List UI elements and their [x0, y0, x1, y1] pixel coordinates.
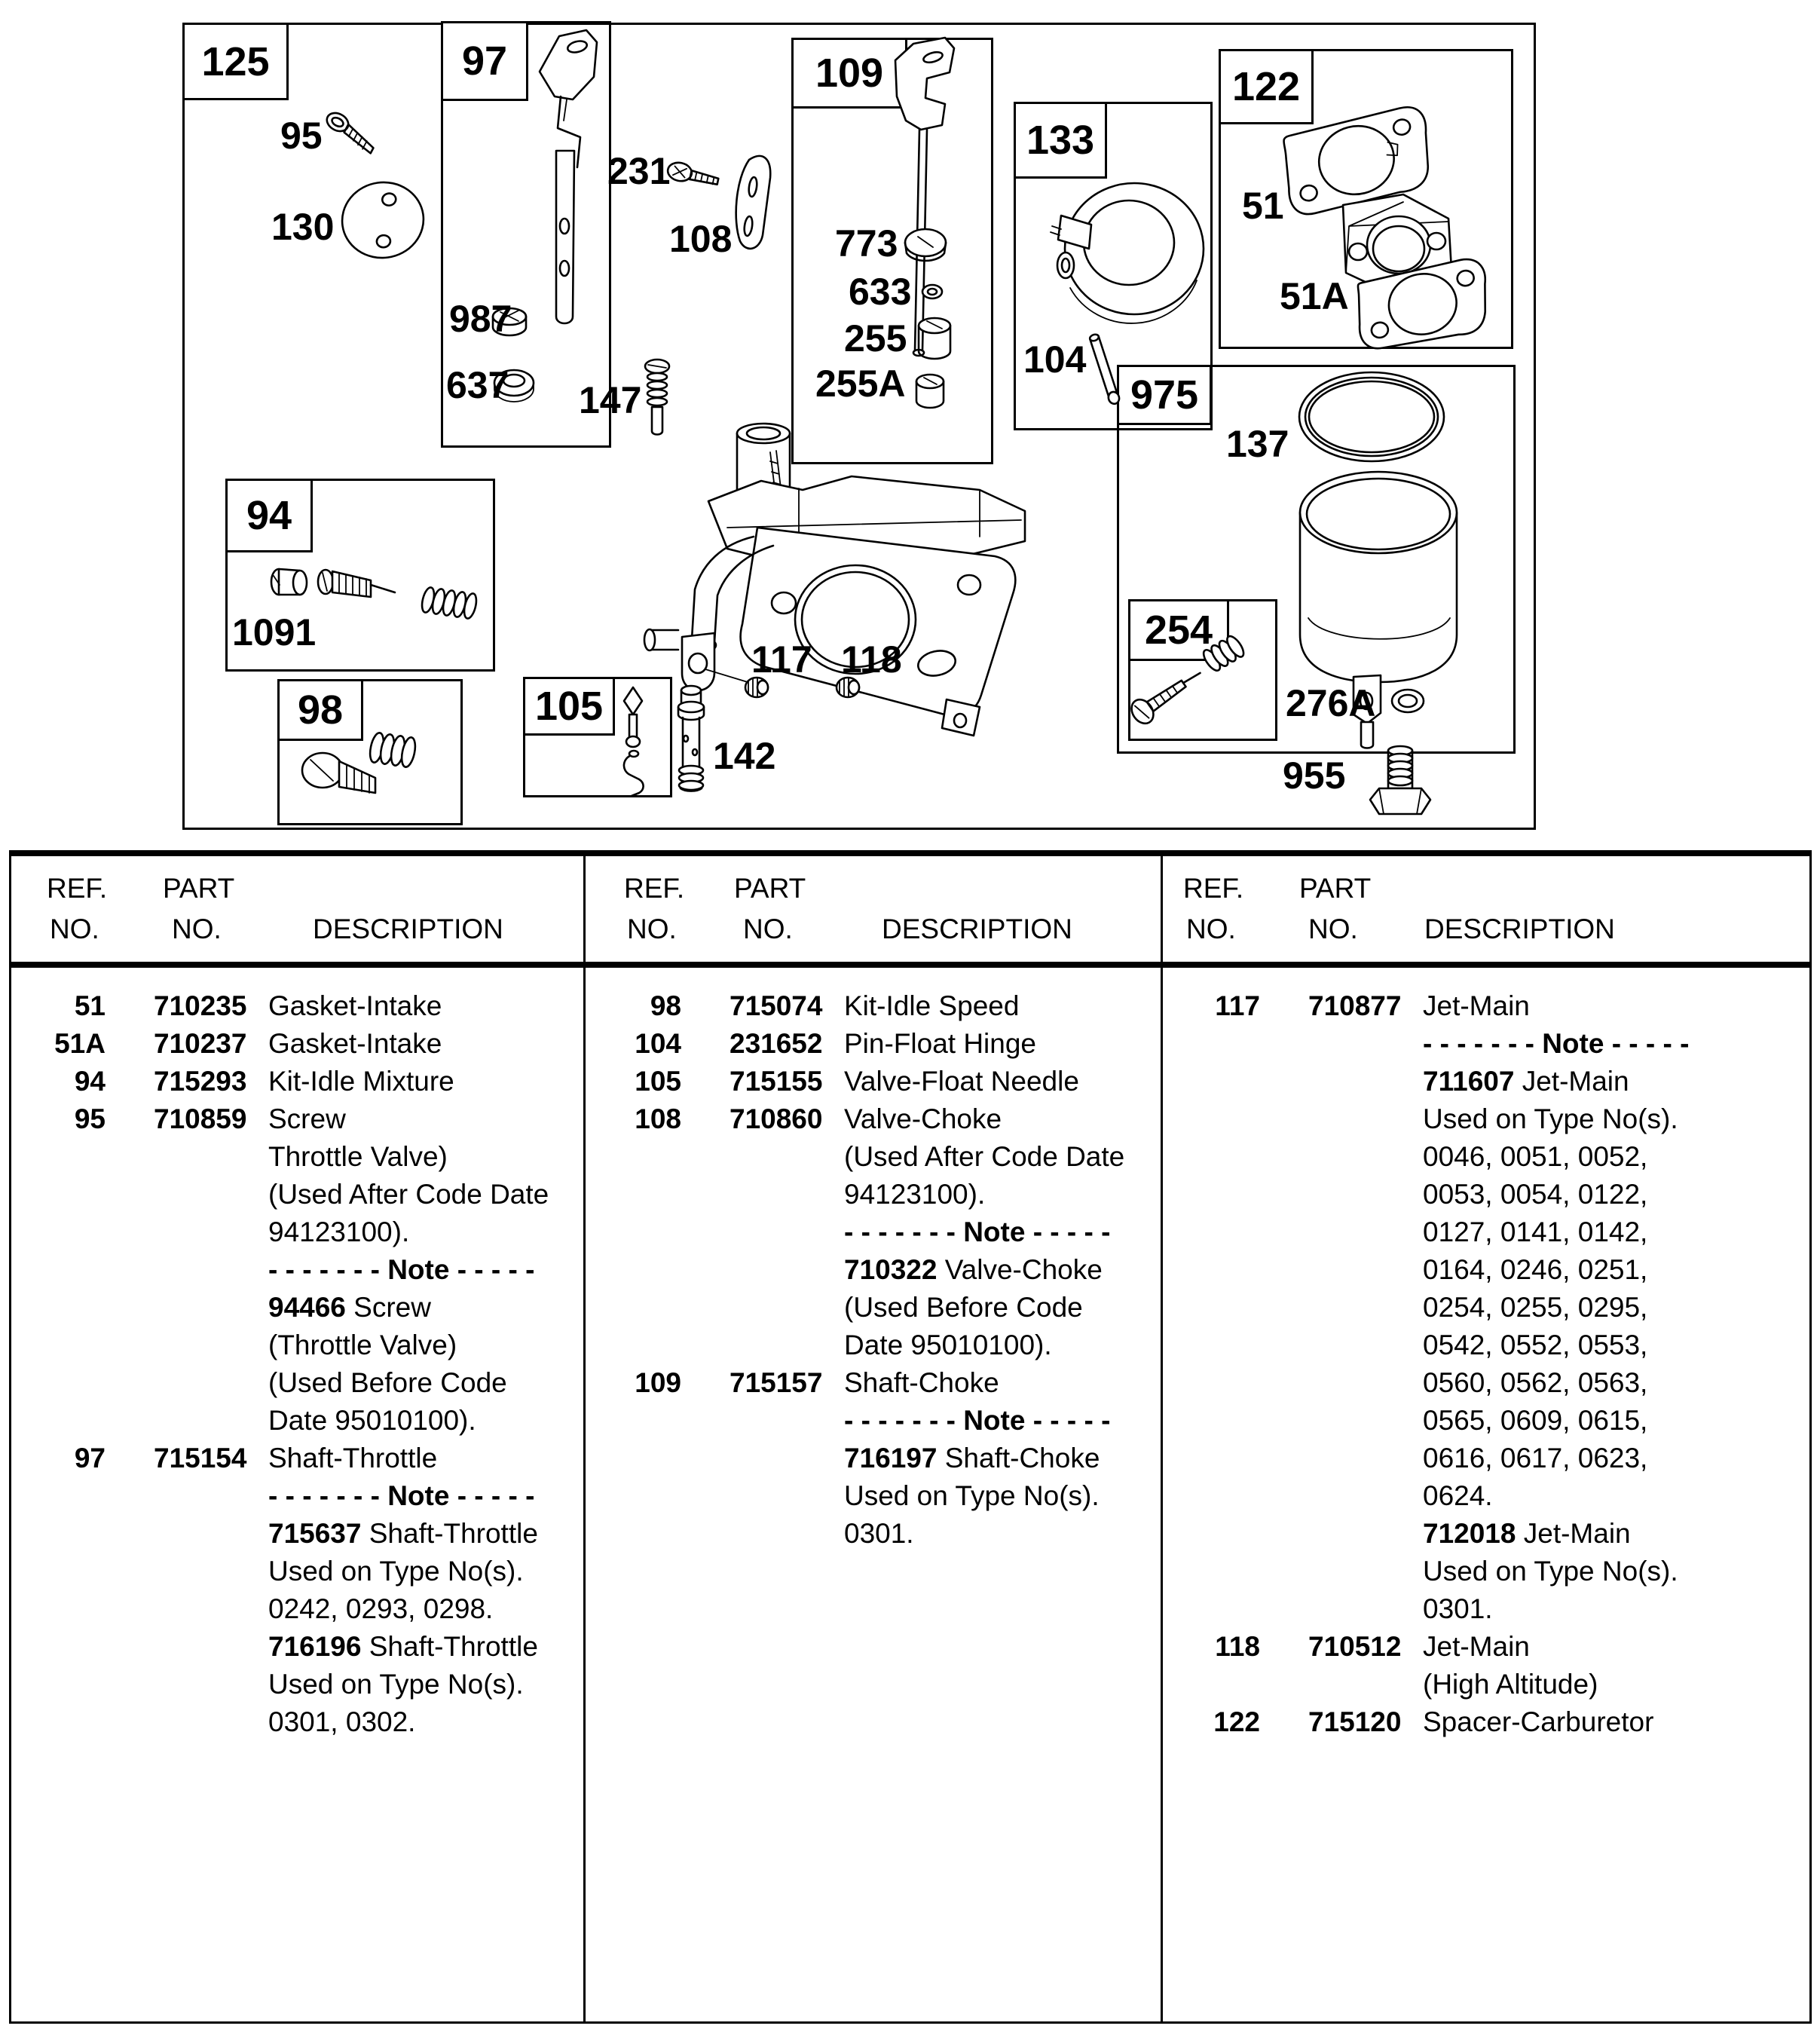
table-row: - - - - - - - Note - - - - - [591, 1402, 1158, 1440]
col3-header-no2: NO. [1308, 915, 1358, 943]
part-no: 715120 [1308, 1703, 1401, 1741]
col1-header-no1: NO. [50, 915, 99, 943]
table-header-rule [9, 962, 1812, 968]
table-row: 0254, 0255, 0295, [1170, 1289, 1809, 1327]
ref-no: 51A [15, 1025, 106, 1063]
table-row: Date 95010100). [591, 1327, 1158, 1364]
ref-no: 118 [1170, 1628, 1260, 1666]
bowl-gasket-137-illustration [1299, 372, 1444, 461]
description: Jet-Main [1423, 1628, 1530, 1666]
col2-header-ref: REF. [624, 874, 684, 902]
tube-142-illustration [678, 686, 704, 791]
description: 0560, 0562, 0563, [1423, 1364, 1647, 1402]
table-row: 0616, 0617, 0623, [1170, 1440, 1809, 1477]
description: (High Altitude) [1423, 1666, 1598, 1703]
col2-header-desc: DESCRIPTION [882, 915, 1072, 943]
throttle-valve-disc-illustration [338, 177, 429, 263]
table-row: 0046, 0051, 0052, [1170, 1138, 1809, 1176]
col2-header-part: PART [734, 874, 806, 902]
table-row: 117710877Jet-Main [1170, 987, 1809, 1025]
description: 0301. [844, 1515, 914, 1553]
description: Throttle Valve) [268, 1138, 448, 1176]
description: - - - - - - - Note - - - - - [844, 1402, 1110, 1440]
ref-no: 97 [15, 1440, 106, 1477]
parts-illustrations [0, 0, 1820, 844]
description: 715637 Shaft-Throttle [268, 1515, 538, 1553]
table-divider-2 [1161, 850, 1163, 2024]
table-row: 122715120Spacer-Carburetor [1170, 1703, 1809, 1741]
callout-955: 955 [1283, 757, 1345, 794]
ref-no: 51 [15, 987, 106, 1025]
description: Jet-Main [1423, 987, 1530, 1025]
table-row: 51710235Gasket-Intake [15, 987, 580, 1025]
col2-header-no2: NO. [743, 915, 793, 943]
table-row: 95710859Screw [15, 1100, 580, 1138]
float-illustration [1051, 183, 1204, 323]
description: 0542, 0552, 0553, [1423, 1327, 1647, 1364]
callout-255a: 255A [815, 365, 906, 402]
description: - - - - - - - Note - - - - - [844, 1213, 1110, 1251]
table-row: 0301, 0302. [15, 1703, 580, 1741]
col2-header-no1: NO. [627, 915, 677, 943]
table-row: 108710860Valve-Choke [591, 1100, 1158, 1138]
col1-header-part: PART [163, 874, 234, 902]
description: Screw [268, 1100, 346, 1138]
washer-633-illustration [922, 285, 942, 298]
part-no: 715155 [730, 1063, 822, 1100]
description: Valve-Float Needle [844, 1063, 1079, 1100]
description: (Used Before Code [268, 1364, 507, 1402]
table-row: 712018 Jet-Main [1170, 1515, 1809, 1553]
ref-no: 98 [591, 987, 681, 1025]
col1-header-ref: REF. [47, 874, 107, 902]
table-row: Used on Type No(s). [15, 1553, 580, 1590]
callout-147: 147 [579, 381, 641, 419]
part-no: 710860 [730, 1100, 822, 1138]
description: 0046, 0051, 0052, [1423, 1138, 1647, 1176]
description: Date 95010100). [268, 1402, 476, 1440]
callout-637: 637 [446, 366, 509, 404]
part-no: 231652 [730, 1025, 822, 1063]
description: 0242, 0293, 0298. [268, 1590, 493, 1628]
ref-no: 117 [1170, 987, 1260, 1025]
bowl-bolt-955-illustration [1370, 746, 1430, 814]
callout-987: 987 [449, 300, 512, 338]
description: Spacer-Carburetor [1423, 1703, 1653, 1741]
description: 711607 Jet-Main [1423, 1063, 1629, 1100]
callout-1091: 1091 [232, 614, 316, 651]
table-row: 94123100). [591, 1176, 1158, 1213]
callout-95: 95 [280, 117, 323, 155]
description: 0301. [1423, 1590, 1493, 1628]
choke-valve-screw-illustration [666, 161, 720, 189]
part-no: 710235 [154, 987, 246, 1025]
description: Used on Type No(s). [1423, 1553, 1678, 1590]
callout-130: 130 [271, 208, 334, 246]
table-row: 118710512Jet-Main [1170, 1628, 1809, 1666]
table-row: 0565, 0609, 0615, [1170, 1402, 1809, 1440]
idle-speed-kit-illustration [302, 732, 418, 793]
float-hinge-pin-illustration [1088, 333, 1121, 405]
description: Date 95010100). [844, 1327, 1052, 1364]
table-row: (High Altitude) [1170, 1666, 1809, 1703]
table-left-border [9, 850, 11, 2024]
description: Kit-Idle Mixture [268, 1063, 454, 1100]
table-row: 105715155Valve-Float Needle [591, 1063, 1158, 1100]
description: 94123100). [268, 1213, 409, 1251]
part-no: 715074 [730, 987, 822, 1025]
callout-118: 118 [841, 641, 902, 678]
description: Used on Type No(s). [1423, 1100, 1678, 1138]
table-row: 97715154Shaft-Throttle [15, 1440, 580, 1477]
ref-no: 109 [591, 1364, 681, 1402]
description: (Throttle Valve) [268, 1327, 457, 1364]
callout-255: 255 [844, 320, 907, 357]
description: - - - - - - - Note - - - - - [1423, 1025, 1689, 1063]
description: - - - - - - - Note - - - - - [268, 1477, 534, 1515]
table-bottom-rule [9, 2021, 1812, 2024]
washer-276a-illustration [1392, 690, 1424, 712]
part-no: 710237 [154, 1025, 246, 1063]
table-row: - - - - - - - Note - - - - - [1170, 1025, 1809, 1063]
part-no: 715154 [154, 1440, 246, 1477]
table-row: 0127, 0141, 0142, [1170, 1213, 1809, 1251]
description: 94123100). [844, 1176, 985, 1213]
description: 716196 Shaft-Throttle [268, 1628, 538, 1666]
choke-valve-plate-illustration [736, 156, 771, 249]
description: 0053, 0054, 0122, [1423, 1176, 1647, 1213]
description: Used on Type No(s). [844, 1477, 1100, 1515]
table-row: 51A710237Gasket-Intake [15, 1025, 580, 1063]
callout-117: 117 [751, 641, 812, 678]
callout-633: 633 [849, 273, 911, 311]
table-row: 94123100). [15, 1213, 580, 1251]
table-row: 104231652Pin-Float Hinge [591, 1025, 1158, 1063]
table-column-3: 117710877Jet-Main- - - - - - - Note - - … [1170, 987, 1809, 1741]
description: Shaft-Throttle [268, 1440, 437, 1477]
table-row: Used on Type No(s). [15, 1666, 580, 1703]
table-row: (Used After Code Date [15, 1176, 580, 1213]
description: Gasket-Intake [268, 987, 442, 1025]
table-row: Used on Type No(s). [1170, 1553, 1809, 1590]
callout-108: 108 [669, 220, 732, 258]
description: (Used After Code Date [844, 1138, 1124, 1176]
welch-plug-255a-illustration [916, 375, 944, 408]
table-row: (Throttle Valve) [15, 1327, 580, 1364]
description: Shaft-Choke [844, 1364, 999, 1402]
table-row: - - - - - - - Note - - - - - [15, 1477, 580, 1515]
part-no: 715293 [154, 1063, 246, 1100]
description: - - - - - - - Note - - - - - [268, 1251, 534, 1289]
table-row: 0560, 0562, 0563, [1170, 1364, 1809, 1402]
callout-142: 142 [713, 737, 775, 775]
description: 710322 Valve-Choke [844, 1251, 1103, 1289]
ref-no: 95 [15, 1100, 106, 1138]
parts-list-table: REF. NO. PART NO. DESCRIPTION REF. NO. P… [9, 850, 1812, 2026]
description: 0565, 0609, 0615, [1423, 1402, 1647, 1440]
callout-51a: 51A [1280, 277, 1349, 315]
float-needle-illustration [624, 687, 644, 796]
cup-773-illustration [905, 229, 946, 261]
idle-speed-screw-147-illustration [645, 360, 669, 435]
table-row: 0301. [1170, 1590, 1809, 1628]
table-row: 109715157Shaft-Choke [591, 1364, 1158, 1402]
col3-header-part: PART [1299, 874, 1371, 902]
ref-no: 104 [591, 1025, 681, 1063]
exploded-parts-diagram: 125 97 109 133 122 975 254 94 98 105 [0, 0, 1820, 844]
table-column-1: 51710235Gasket-Intake51A710237Gasket-Int… [15, 987, 580, 1741]
description: Used on Type No(s). [268, 1666, 524, 1703]
table-right-border [1809, 850, 1812, 2024]
table-row: 0542, 0552, 0553, [1170, 1327, 1809, 1364]
table-row: 0624. [1170, 1477, 1809, 1515]
description: 94466 Screw [268, 1289, 431, 1327]
table-row: 716196 Shaft-Throttle [15, 1628, 580, 1666]
description: 0301, 0302. [268, 1703, 415, 1741]
description: Gasket-Intake [268, 1025, 442, 1063]
description: Pin-Float Hinge [844, 1025, 1036, 1063]
callout-276a: 276A [1286, 684, 1376, 722]
table-top-rule [9, 850, 1812, 856]
table-row: 94715293Kit-Idle Mixture [15, 1063, 580, 1100]
table-row: 0053, 0054, 0122, [1170, 1176, 1809, 1213]
ref-no: 108 [591, 1100, 681, 1138]
description: 0624. [1423, 1477, 1493, 1515]
description: Used on Type No(s). [268, 1553, 524, 1590]
description: (Used Before Code [844, 1289, 1083, 1327]
table-row: (Used Before Code [591, 1289, 1158, 1327]
description: Valve-Choke [844, 1100, 1002, 1138]
table-divider-1 [583, 850, 586, 2024]
table-row: 98715074Kit-Idle Speed [591, 987, 1158, 1025]
table-row: 711607 Jet-Main [1170, 1063, 1809, 1100]
table-row: 94466 Screw [15, 1289, 580, 1327]
throttle-shaft-illustration [540, 30, 597, 323]
callout-51: 51 [1242, 187, 1284, 225]
ref-no: 94 [15, 1063, 106, 1100]
ref-no: 122 [1170, 1703, 1260, 1741]
table-row: (Used After Code Date [591, 1138, 1158, 1176]
needle-kit-254-illustration [1127, 632, 1247, 727]
table-row: - - - - - - - Note - - - - - [15, 1251, 580, 1289]
col3-header-no1: NO. [1186, 915, 1236, 943]
callout-104: 104 [1023, 341, 1086, 378]
table-row: (Used Before Code [15, 1364, 580, 1402]
table-column-2: 98715074Kit-Idle Speed104231652Pin-Float… [591, 987, 1158, 1553]
parts-catalog-page: { "diagram": { "boxes": { "b125":"125","… [0, 0, 1820, 2035]
description: Kit-Idle Speed [844, 987, 1019, 1025]
description: 0254, 0255, 0295, [1423, 1289, 1647, 1327]
description: 712018 Jet-Main [1423, 1515, 1631, 1553]
table-row: 716197 Shaft-Choke [591, 1440, 1158, 1477]
ref-no: 105 [591, 1063, 681, 1100]
description: 0127, 0141, 0142, [1423, 1213, 1647, 1251]
table-row: Used on Type No(s). [1170, 1100, 1809, 1138]
part-no: 710859 [154, 1100, 246, 1138]
description: 0164, 0246, 0251, [1423, 1251, 1647, 1289]
table-row: 715637 Shaft-Throttle [15, 1515, 580, 1553]
col1-header-no2: NO. [172, 915, 222, 943]
table-row: Throttle Valve) [15, 1138, 580, 1176]
part-no: 710877 [1308, 987, 1401, 1025]
table-row: 0242, 0293, 0298. [15, 1590, 580, 1628]
table-row: Used on Type No(s). [591, 1477, 1158, 1515]
part-no: 710512 [1308, 1628, 1401, 1666]
table-row: - - - - - - - Note - - - - - [591, 1213, 1158, 1251]
description: (Used After Code Date [268, 1176, 549, 1213]
table-row: Date 95010100). [15, 1402, 580, 1440]
table-row: 710322 Valve-Choke [591, 1251, 1158, 1289]
table-row: 0164, 0246, 0251, [1170, 1251, 1809, 1289]
col3-header-ref: REF. [1183, 874, 1243, 902]
callout-137: 137 [1226, 425, 1289, 463]
throttle-valve-screw-illustration [322, 109, 380, 153]
part-no: 715157 [730, 1364, 822, 1402]
table-row: 0301. [591, 1515, 1158, 1553]
callout-231: 231 [607, 152, 670, 190]
callout-773: 773 [835, 225, 898, 262]
description: 0616, 0617, 0623, [1423, 1440, 1647, 1477]
col1-header-desc: DESCRIPTION [313, 915, 503, 943]
col3-header-desc: DESCRIPTION [1424, 915, 1615, 943]
description: 716197 Shaft-Choke [844, 1440, 1100, 1477]
